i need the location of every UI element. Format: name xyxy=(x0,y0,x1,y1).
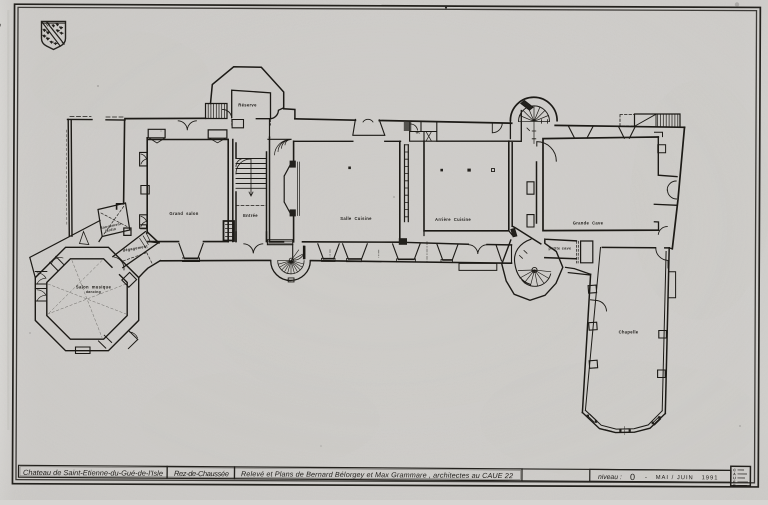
svg-text:Grand salon: Grand salon xyxy=(169,211,198,216)
svg-text:Chateau de Saint-Etienne-du-Gu: Chateau de Saint-Etienne-du-Gué-de-l'Isl… xyxy=(23,468,163,478)
svg-text:wc: wc xyxy=(415,131,421,135)
svg-text:Entrée: Entrée xyxy=(243,213,258,218)
svg-text:B: B xyxy=(733,484,736,488)
svg-text:petite cave: petite cave xyxy=(549,247,572,251)
svg-text:0: 0 xyxy=(630,472,635,482)
svg-text:Grande Cave: Grande Cave xyxy=(573,221,604,226)
svg-text:Chapelle: Chapelle xyxy=(619,330,639,335)
svg-text:niveau :: niveau : xyxy=(598,474,622,481)
svg-text:Réserve: Réserve xyxy=(238,103,257,108)
svg-text:Arrière Cuisine: Arrière Cuisine xyxy=(435,217,471,222)
svg-text:dancing: dancing xyxy=(86,290,101,294)
svg-text:Rez-de-Chaussée: Rez-de-Chaussée xyxy=(174,469,229,478)
svg-text:- MAI / JUIN 1991: - MAI / JUIN 1991 xyxy=(645,475,719,482)
svg-text:Salle Cuisine: Salle Cuisine xyxy=(340,216,372,221)
svg-text:Salon musique: Salon musique xyxy=(76,285,112,290)
